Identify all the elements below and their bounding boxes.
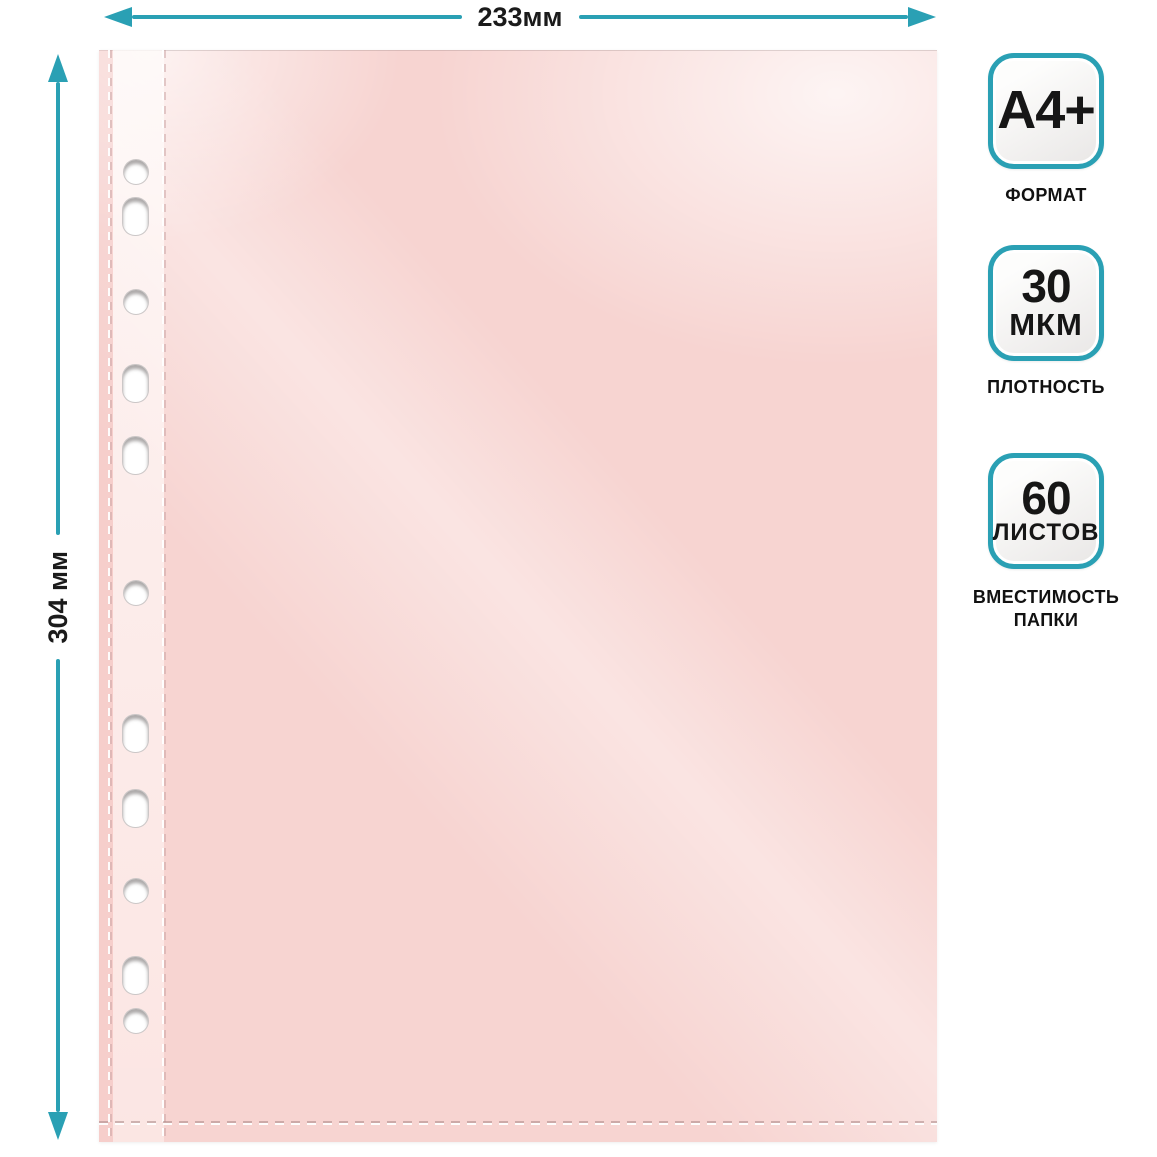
arrow-down-icon — [48, 1112, 68, 1140]
arrow-right-icon — [908, 7, 936, 27]
thickness-unit: МКМ — [1009, 309, 1083, 342]
punch-hole — [123, 289, 149, 315]
punch-hole — [122, 714, 149, 753]
thickness-caption: ПЛОТНОСТЬ — [948, 376, 1144, 399]
arrow-up-icon — [48, 54, 68, 82]
punch-hole — [123, 580, 149, 606]
punch-hole — [122, 436, 149, 475]
format-value: A4+ — [997, 85, 1095, 136]
dimension-line — [56, 82, 60, 535]
capacity-unit: ЛИСТОВ — [993, 520, 1100, 545]
product-infographic: 233мм 304 мм A4+ ФОРМАТ 30 МК — [0, 0, 1157, 1157]
punch-hole — [122, 956, 149, 995]
sheet-protector — [99, 50, 937, 1142]
format-badge: A4+ — [988, 53, 1104, 169]
thickness-value: 30 — [1021, 265, 1070, 309]
format-caption: ФОРМАТ — [948, 184, 1144, 207]
capacity-caption: ВМЕСТИМОСТЬ ПАПКИ — [948, 586, 1144, 633]
punch-hole — [123, 1008, 149, 1034]
width-dimension: 233мм — [104, 2, 936, 32]
capacity-badge: 60 ЛИСТОВ — [988, 453, 1104, 569]
punch-hole — [122, 789, 149, 828]
weld-seam-left — [108, 50, 112, 1142]
punch-hole — [123, 159, 149, 185]
height-dimension: 304 мм — [43, 54, 73, 1140]
dimension-line — [579, 15, 909, 19]
width-label: 233мм — [478, 2, 563, 33]
punch-hole — [123, 878, 149, 904]
punch-hole — [122, 364, 149, 403]
capacity-value: 60 — [1021, 477, 1070, 521]
dimension-line — [132, 15, 462, 19]
dimension-line — [56, 659, 60, 1112]
punch-hole — [122, 197, 149, 236]
weld-seam-bottom — [99, 1121, 937, 1125]
height-label: 304 мм — [43, 551, 74, 644]
arrow-left-icon — [104, 7, 132, 27]
thickness-badge: 30 МКМ — [988, 245, 1104, 361]
weld-seam-inner — [162, 50, 166, 1142]
